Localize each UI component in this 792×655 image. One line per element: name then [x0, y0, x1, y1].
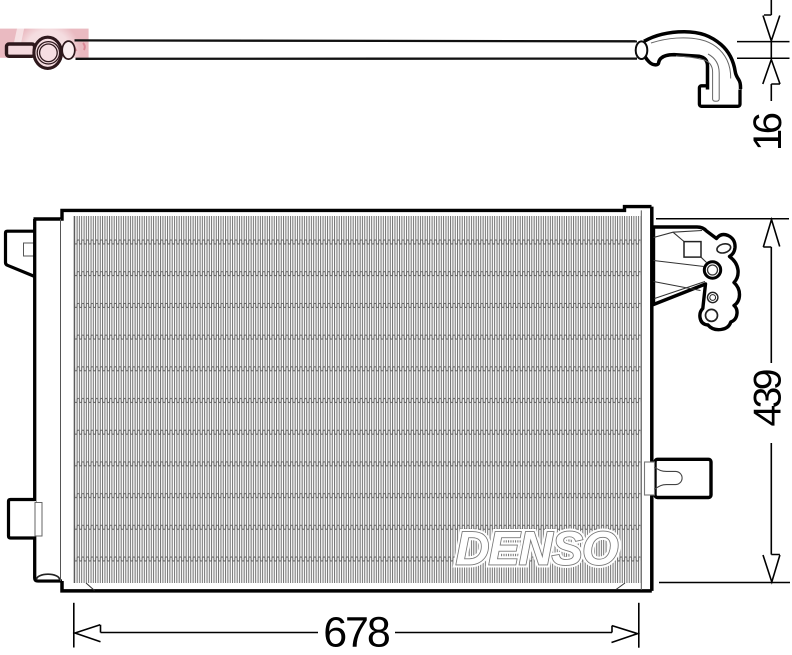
svg-text:DENSO: DENSO	[456, 522, 619, 575]
svg-text:439: 439	[747, 369, 790, 427]
svg-text:16: 16	[746, 112, 790, 151]
svg-text:678: 678	[323, 609, 391, 655]
